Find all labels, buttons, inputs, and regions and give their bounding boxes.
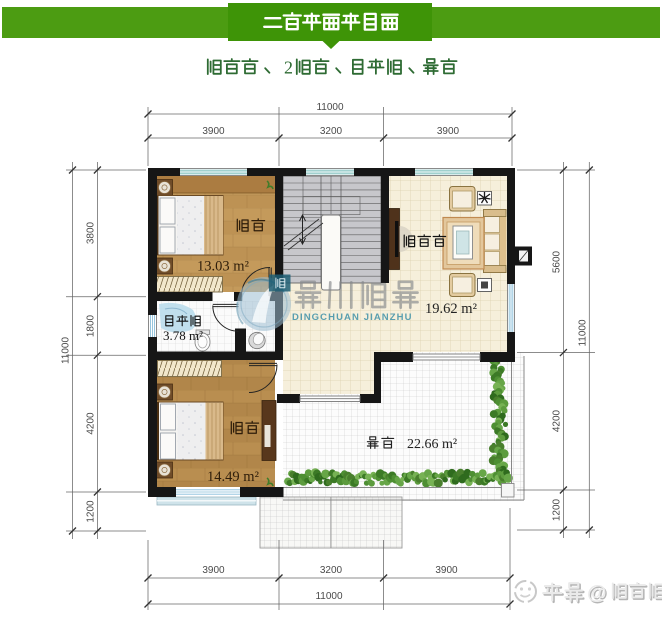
- svg-text:3900: 3900: [437, 126, 460, 137]
- svg-text:3900: 3900: [202, 126, 225, 137]
- svg-text:3.78 m²: 3.78 m²: [163, 328, 203, 343]
- svg-text:13.03 m²: 13.03 m²: [197, 259, 250, 275]
- svg-text:1200: 1200: [86, 500, 97, 523]
- svg-text:11000: 11000: [316, 102, 344, 113]
- svg-text:3800: 3800: [86, 221, 97, 244]
- svg-text:DINGCHUAN JIANZHU: DINGCHUAN JIANZHU: [292, 312, 413, 323]
- svg-text:3900: 3900: [435, 565, 458, 576]
- svg-text:14.49 m²: 14.49 m²: [207, 469, 260, 485]
- svg-text:5600: 5600: [552, 250, 563, 273]
- svg-text:3200: 3200: [320, 126, 343, 137]
- svg-text:1800: 1800: [86, 314, 97, 337]
- svg-text:19.62 m²: 19.62 m²: [425, 301, 478, 317]
- svg-text:3900: 3900: [202, 565, 225, 576]
- svg-text:3200: 3200: [320, 565, 343, 576]
- svg-text:22.66 m²: 22.66 m²: [407, 437, 457, 452]
- svg-text:1200: 1200: [552, 498, 563, 521]
- svg-text:@: @: [587, 582, 607, 604]
- svg-text:11000: 11000: [315, 591, 343, 602]
- svg-text:11000: 11000: [578, 319, 589, 347]
- svg-text:2: 2: [284, 58, 293, 78]
- svg-text:4200: 4200: [552, 409, 563, 432]
- svg-text:11000: 11000: [61, 337, 72, 365]
- svg-text:4200: 4200: [86, 412, 97, 435]
